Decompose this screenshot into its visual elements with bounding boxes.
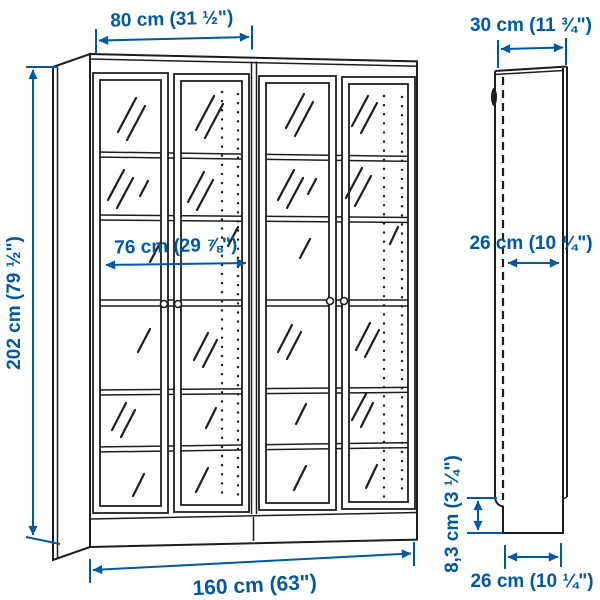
dimension-diagram-canvas: 80 cm (31 ½") 202 cm (79 ½") 76 cm (29 ⅞… xyxy=(0,0,600,600)
dim-side-top-depth: 30 cm (11 ¾") xyxy=(470,15,592,68)
side-knob xyxy=(491,88,497,106)
dim-front-top-width: 80 cm (31 ½") xyxy=(96,7,252,53)
dimension-label: 160 cm (63") xyxy=(192,571,317,600)
dim-side-inner-depth: 26 cm (10 ¼") xyxy=(469,233,592,263)
dimension-label: 80 cm (31 ½") xyxy=(110,7,234,31)
dimension-label: 76 cm (29 ⅞") xyxy=(114,234,238,258)
side-panel-left xyxy=(53,54,90,560)
dimension-label: 30 cm (11 ¾") xyxy=(470,15,592,36)
dimension-label: 26 cm (10 ¼") xyxy=(469,233,592,254)
dim-side-plinth-height: 8,3 cm (3 ¼") xyxy=(442,455,503,573)
dimension-label: 202 cm (79 ½") xyxy=(4,236,25,370)
bookcase-front-view xyxy=(53,54,417,560)
dim-front-total-width: 160 cm (63") xyxy=(90,542,414,600)
side-panel-view xyxy=(491,67,567,534)
dimension-label: 26 cm (10 ¼") xyxy=(470,571,593,592)
dimension-label: 8,3 cm (3 ¼") xyxy=(442,455,463,573)
dim-front-height: 202 cm (79 ½") xyxy=(4,67,60,544)
product-dimension-diagram: 80 cm (31 ½") 202 cm (79 ½") 76 cm (29 ⅞… xyxy=(0,0,600,600)
dim-side-bottom-depth: 26 cm (10 ¼") xyxy=(470,543,593,592)
